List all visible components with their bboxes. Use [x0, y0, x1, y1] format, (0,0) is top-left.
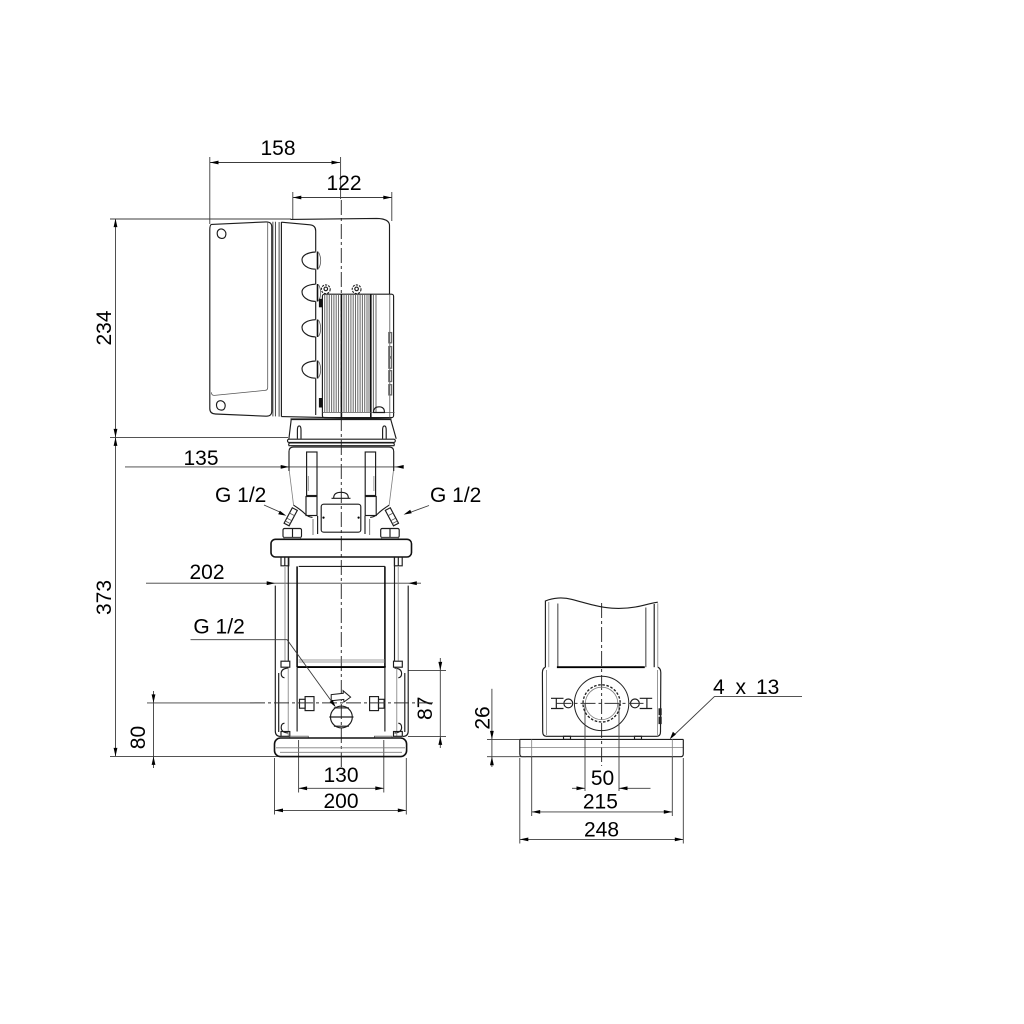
svg-text:248: 248: [584, 819, 619, 842]
svg-text:130: 130: [323, 764, 358, 787]
svg-text:50: 50: [591, 767, 614, 790]
svg-text:4: 4: [713, 676, 725, 699]
svg-text:215: 215: [583, 791, 618, 814]
svg-text:G 1/2: G 1/2: [215, 484, 266, 507]
svg-text:80: 80: [127, 726, 150, 749]
svg-text:G 1/2: G 1/2: [193, 616, 244, 639]
svg-text:234: 234: [93, 310, 116, 345]
svg-text:x: x: [736, 676, 747, 699]
svg-text:202: 202: [189, 561, 224, 584]
svg-text:G 1/2: G 1/2: [430, 484, 481, 507]
svg-text:200: 200: [323, 790, 358, 813]
svg-text:26: 26: [471, 706, 494, 729]
svg-text:13: 13: [756, 676, 779, 699]
svg-text:158: 158: [260, 137, 295, 160]
svg-text:122: 122: [326, 172, 361, 195]
svg-text:87: 87: [414, 697, 437, 720]
svg-text:373: 373: [93, 580, 116, 615]
